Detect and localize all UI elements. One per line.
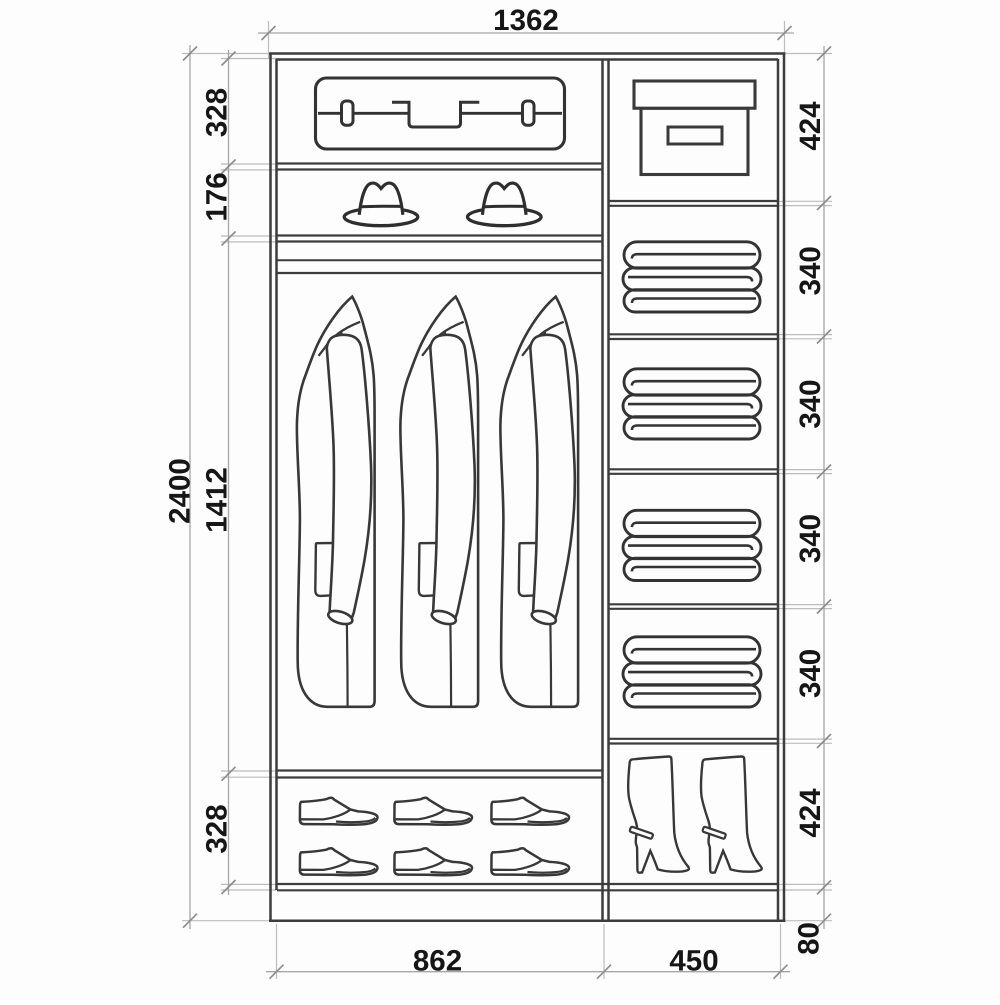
svg-text:328: 328 [201, 804, 234, 853]
svg-text:340: 340 [794, 379, 827, 428]
svg-text:1412: 1412 [201, 467, 234, 533]
svg-text:340: 340 [794, 514, 827, 563]
svg-text:340: 340 [794, 246, 827, 295]
svg-text:862: 862 [413, 945, 462, 978]
svg-text:424: 424 [794, 101, 827, 151]
svg-text:2400: 2400 [164, 458, 197, 524]
svg-text:340: 340 [794, 649, 827, 698]
svg-text:424: 424 [794, 788, 827, 838]
svg-text:328: 328 [201, 88, 234, 137]
svg-text:80: 80 [793, 922, 826, 955]
svg-text:450: 450 [669, 945, 718, 978]
svg-text:176: 176 [201, 172, 234, 221]
svg-text:1362: 1362 [493, 4, 559, 37]
